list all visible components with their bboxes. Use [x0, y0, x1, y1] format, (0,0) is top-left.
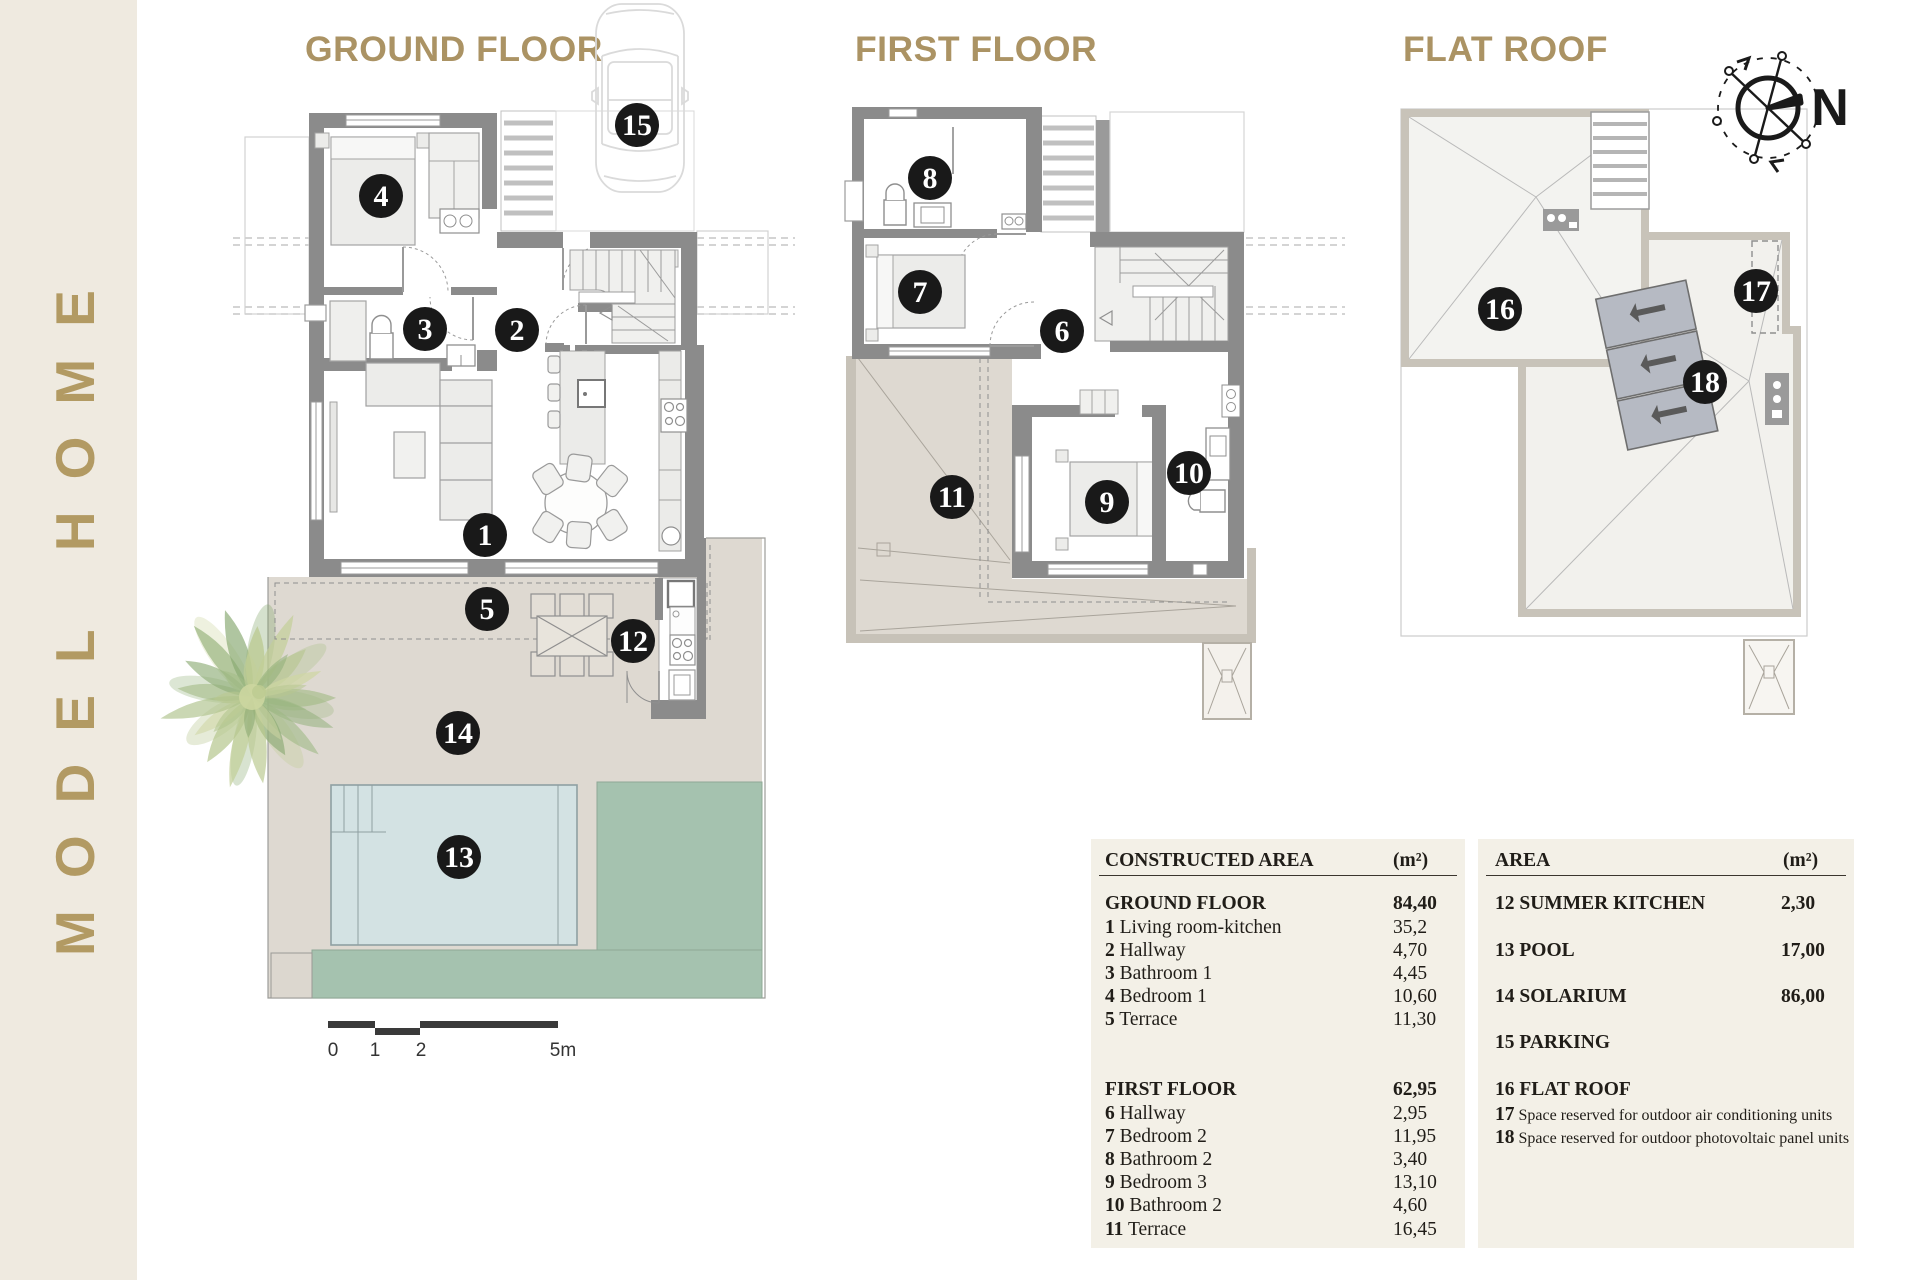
svg-text:17: 17 [1741, 275, 1771, 308]
svg-text:8: 8 [923, 162, 938, 195]
svg-text:6: 6 [1055, 315, 1070, 348]
svg-text:3: 3 [418, 313, 433, 346]
svg-text:2: 2 [416, 1040, 427, 1061]
svg-text:13: 13 [444, 841, 474, 874]
svg-text:18: 18 [1690, 366, 1720, 399]
svg-text:14: 14 [443, 717, 473, 750]
svg-text:N: N [1811, 79, 1849, 137]
svg-text:5: 5 [480, 593, 495, 626]
svg-text:5m: 5m [550, 1040, 576, 1061]
svg-text:9: 9 [1100, 486, 1115, 519]
svg-text:1: 1 [370, 1040, 381, 1061]
svg-text:12: 12 [618, 625, 648, 658]
svg-text:16: 16 [1485, 293, 1515, 326]
svg-text:4: 4 [374, 180, 389, 213]
svg-text:10: 10 [1174, 457, 1204, 490]
svg-text:2: 2 [510, 314, 525, 347]
svg-text:15: 15 [622, 109, 652, 142]
svg-text:0: 0 [328, 1040, 339, 1061]
svg-text:7: 7 [913, 276, 928, 309]
svg-text:11: 11 [938, 481, 966, 514]
svg-text:1: 1 [478, 519, 493, 552]
